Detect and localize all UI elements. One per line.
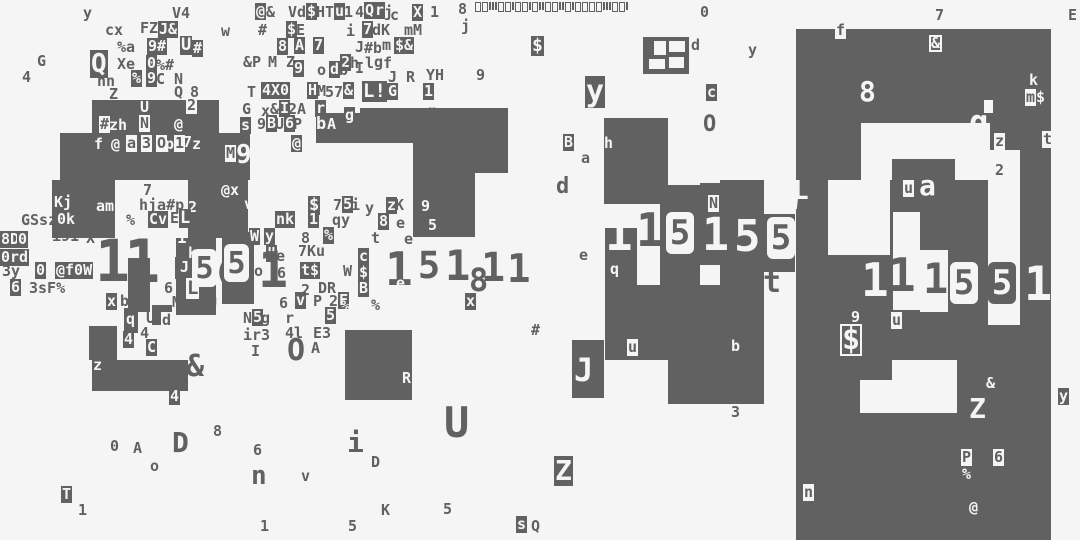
glyph: 0 bbox=[110, 439, 119, 454]
glyph: i bbox=[351, 198, 360, 213]
glyph: y bbox=[365, 201, 374, 216]
glyph: e bbox=[404, 232, 413, 247]
glyph: 6 bbox=[253, 443, 262, 458]
glyph: J bbox=[180, 260, 189, 275]
glyph: n bbox=[803, 484, 814, 501]
glyph: b bbox=[316, 116, 326, 133]
glyph: e bbox=[579, 248, 588, 263]
big-digit: 1 bbox=[702, 212, 729, 257]
glyph: A bbox=[133, 441, 142, 456]
big-digit: 1 bbox=[923, 258, 948, 300]
big-digit: 5 bbox=[224, 244, 249, 282]
glyph: P bbox=[313, 294, 322, 309]
glyph: u bbox=[98, 327, 107, 342]
glyph: e bbox=[253, 147, 265, 167]
glyph: u bbox=[891, 312, 902, 329]
glyph: & bbox=[343, 82, 354, 99]
glyph: % bbox=[126, 213, 135, 228]
barcode-box bbox=[596, 2, 602, 12]
glyph: B bbox=[909, 216, 918, 231]
glyph: 9 bbox=[257, 117, 266, 132]
barcode-box bbox=[575, 2, 581, 12]
window-pane bbox=[649, 59, 665, 69]
glyph: 9# bbox=[147, 38, 167, 55]
barcode-box bbox=[532, 2, 538, 12]
glyph: 5 bbox=[428, 218, 437, 233]
hole bbox=[860, 380, 957, 413]
glyph: a bbox=[126, 135, 137, 152]
glyph: 0 bbox=[700, 5, 709, 20]
glyph: Y bbox=[71, 196, 80, 211]
barcode-box bbox=[552, 2, 558, 12]
glyph: 1 bbox=[423, 83, 434, 100]
big-digit: 5 bbox=[734, 215, 761, 259]
glyph: E bbox=[1068, 8, 1077, 23]
glyph: s bbox=[516, 516, 527, 533]
glyph: 8 bbox=[378, 213, 389, 230]
glyph: GSsz bbox=[21, 213, 57, 228]
glyph: J& bbox=[158, 21, 178, 38]
big-digit: 1 bbox=[605, 211, 633, 257]
glyph: d bbox=[556, 176, 569, 198]
glyph: # bbox=[192, 40, 203, 57]
glyph: 0k bbox=[56, 211, 76, 228]
barcode-bar bbox=[539, 2, 541, 10]
glyph: y bbox=[83, 6, 92, 21]
glyph: f bbox=[94, 137, 103, 152]
barcode-bar bbox=[489, 2, 491, 10]
glyph: g bbox=[261, 311, 270, 326]
glyph: qy bbox=[332, 213, 350, 228]
glyph: Z bbox=[969, 395, 986, 423]
big-digit: 1 bbox=[1024, 261, 1052, 308]
glyph: % bbox=[131, 70, 142, 87]
barcode-box bbox=[482, 2, 488, 12]
barcode-box bbox=[545, 2, 551, 12]
big-digit: 5 bbox=[414, 242, 444, 288]
glyph: J bbox=[574, 354, 593, 386]
glyph: P bbox=[293, 117, 302, 132]
glyph: Z bbox=[554, 456, 573, 486]
glyph: # bbox=[531, 323, 540, 338]
glyph: r bbox=[427, 104, 436, 119]
glyph: %a bbox=[117, 40, 135, 55]
barcode-bar bbox=[559, 2, 561, 10]
glyph: g bbox=[344, 107, 355, 124]
glyph: 6 bbox=[10, 279, 21, 296]
glyph: u bbox=[903, 180, 914, 197]
glyph: i91 bbox=[52, 229, 79, 244]
glyph: k bbox=[188, 246, 197, 261]
glyph: 57 bbox=[325, 85, 343, 100]
glyph: @ bbox=[174, 117, 183, 132]
glyph: W bbox=[343, 264, 352, 279]
glyph: & bbox=[186, 352, 204, 382]
glyph: Cv bbox=[148, 211, 168, 228]
glyph: z bbox=[93, 358, 102, 373]
glyph: G bbox=[387, 83, 398, 100]
glyph: vQ bbox=[244, 197, 262, 212]
glitch-canvas: 115(51151811115155111551yV4@&Vd$HTu14Qrj… bbox=[0, 0, 1080, 540]
glyph: 0 bbox=[17, 231, 28, 248]
glyph: 1 bbox=[78, 503, 87, 518]
glyph: L bbox=[179, 209, 191, 228]
glyph: b bbox=[731, 339, 740, 354]
glyph: % bbox=[962, 467, 971, 482]
glyph: 4 bbox=[169, 388, 180, 405]
glyph: 4X0 bbox=[261, 82, 290, 99]
barcode-bar bbox=[626, 2, 628, 10]
glyph: t bbox=[1042, 131, 1053, 148]
glyph: 7 bbox=[183, 135, 192, 150]
glyph: 5 bbox=[443, 502, 452, 517]
glyph: e bbox=[396, 276, 405, 291]
glyph: 1 bbox=[260, 519, 269, 534]
hole bbox=[828, 180, 890, 255]
glyph: y bbox=[264, 228, 275, 245]
barcode-bar bbox=[492, 2, 494, 10]
barcode-bar bbox=[562, 2, 564, 10]
glyph: B bbox=[358, 280, 369, 297]
glyph: 1 bbox=[177, 230, 187, 246]
glyph: B bbox=[563, 134, 574, 151]
glyph: o bbox=[150, 459, 159, 474]
block bbox=[413, 143, 508, 173]
glyph: K bbox=[395, 198, 404, 213]
glyph: k bbox=[1029, 73, 1038, 88]
glyph: u bbox=[627, 339, 638, 356]
window-pane bbox=[654, 41, 666, 55]
glyph: h bbox=[604, 136, 613, 151]
glyph: U bbox=[444, 402, 469, 444]
glyph: e bbox=[276, 249, 285, 264]
big-digit: 1 bbox=[124, 232, 160, 292]
glyph: 9 bbox=[293, 60, 304, 77]
big-digit: 1 bbox=[445, 245, 470, 287]
glyph: 0 bbox=[35, 262, 46, 279]
glyph: 8 bbox=[458, 2, 467, 17]
glyph: b bbox=[120, 294, 129, 309]
glyph: 2 bbox=[186, 97, 197, 114]
barcode-bar bbox=[542, 2, 544, 10]
barcode-box bbox=[505, 2, 511, 12]
glyph: V4 bbox=[172, 6, 190, 21]
glyph: m bbox=[381, 37, 392, 54]
glyph: Z bbox=[109, 87, 118, 102]
glyph: t$ bbox=[300, 262, 320, 279]
glyph: A bbox=[310, 340, 321, 357]
glyph: Vd bbox=[288, 5, 306, 20]
barcode-box bbox=[498, 2, 504, 12]
glyph: N bbox=[139, 115, 150, 132]
glyph: M bbox=[268, 55, 277, 70]
glyph: O bbox=[287, 336, 305, 366]
glyph: U bbox=[208, 296, 217, 311]
glyph: $& bbox=[394, 37, 414, 54]
big-digit: 5 bbox=[767, 217, 795, 259]
barcode-box bbox=[582, 2, 588, 12]
window-pane bbox=[669, 41, 685, 52]
glyph: % bbox=[341, 299, 350, 314]
glyph: n bbox=[251, 463, 267, 489]
glyph: Q bbox=[174, 85, 183, 100]
glyph: d bbox=[691, 38, 700, 53]
glyph: 4 bbox=[355, 5, 364, 20]
glyph: & bbox=[986, 376, 995, 391]
glyph: t bbox=[371, 231, 380, 246]
glyph: P bbox=[961, 449, 972, 466]
glyph: $ bbox=[1036, 90, 1045, 105]
glyph: % bbox=[371, 298, 380, 313]
glyph: 4 bbox=[22, 70, 31, 85]
glyph: nk bbox=[275, 211, 295, 228]
big-digit: 1 bbox=[481, 248, 505, 288]
glyph: N bbox=[708, 195, 719, 212]
glyph: 3 bbox=[731, 405, 740, 420]
glyph: N bbox=[243, 311, 252, 326]
glyph: w bbox=[221, 24, 230, 39]
barcode-box bbox=[565, 2, 571, 12]
glyph: j bbox=[461, 19, 470, 34]
big-digit: 1 bbox=[636, 207, 664, 253]
glyph: T bbox=[61, 486, 72, 503]
barcode-box bbox=[619, 2, 625, 12]
glyph: 9 bbox=[236, 142, 252, 168]
glyph: D bbox=[371, 455, 380, 470]
glyph: y bbox=[585, 76, 605, 108]
glyph: @f0W bbox=[55, 262, 93, 279]
glyph: W bbox=[249, 228, 260, 245]
glyph: v bbox=[295, 292, 306, 309]
glyph: c bbox=[706, 84, 717, 101]
barcode-box bbox=[475, 2, 481, 12]
glyph: m bbox=[1025, 89, 1036, 106]
barcode-box bbox=[589, 2, 595, 12]
glyph: e bbox=[396, 216, 405, 231]
window-panes-icon bbox=[643, 37, 689, 74]
glyph: s bbox=[240, 117, 251, 134]
glyph: z bbox=[192, 137, 201, 152]
glyph: p bbox=[165, 137, 174, 152]
barcode-bar bbox=[603, 2, 605, 10]
hole bbox=[892, 360, 957, 382]
big-digit: 5 bbox=[988, 262, 1016, 304]
big-digit: 5 bbox=[950, 262, 978, 304]
barcode-bar bbox=[529, 2, 531, 10]
glyph: M bbox=[225, 145, 236, 162]
glyph: v bbox=[301, 469, 310, 484]
glyph: L! bbox=[362, 81, 387, 102]
glyph: # bbox=[258, 23, 267, 38]
glyph: 1 bbox=[308, 211, 319, 228]
glyph: U bbox=[140, 100, 149, 115]
glyph: 8 bbox=[859, 78, 876, 106]
glyph: 4 bbox=[123, 331, 134, 348]
glyph: D bbox=[172, 429, 189, 457]
glyph: L bbox=[186, 278, 199, 299]
glyph: 8 bbox=[213, 424, 222, 439]
glyph: @ bbox=[969, 500, 978, 515]
glyph: Q bbox=[531, 519, 540, 534]
glyph: o bbox=[317, 63, 326, 78]
glyph: 7 bbox=[313, 37, 324, 54]
glyph: g bbox=[969, 106, 988, 138]
big-digit: 5 bbox=[666, 212, 694, 254]
glyph: q bbox=[126, 312, 135, 327]
glyph: O bbox=[703, 114, 716, 136]
glyph: b bbox=[339, 63, 348, 78]
glyph: x bbox=[465, 293, 476, 310]
glyph: I bbox=[251, 344, 260, 359]
glyph: X bbox=[412, 4, 423, 21]
glyph: cx bbox=[105, 23, 123, 38]
big-digit: 1 bbox=[861, 257, 889, 303]
glyph: 2 bbox=[995, 163, 1004, 178]
barcode-strip bbox=[475, 2, 629, 12]
glyph: X bbox=[86, 231, 95, 246]
big-digit: 1 bbox=[888, 252, 916, 298]
glyph: C bbox=[156, 72, 165, 87]
glyph: f bbox=[835, 22, 846, 39]
block bbox=[668, 360, 720, 404]
glyph: 1 bbox=[344, 5, 353, 20]
glyph: G bbox=[37, 54, 46, 69]
barcode-box bbox=[522, 2, 528, 12]
glyph: 7 bbox=[935, 8, 944, 23]
glyph: 9 bbox=[476, 68, 485, 83]
glyph: 3sF% bbox=[29, 281, 65, 296]
barcode-bar bbox=[609, 2, 611, 10]
glyph: ir3 bbox=[243, 328, 270, 343]
glyph: YH bbox=[426, 68, 444, 83]
glyph: y bbox=[748, 43, 757, 58]
glyph: a bbox=[919, 172, 936, 200]
barcode-bar bbox=[606, 2, 608, 10]
glyph: W bbox=[789, 197, 798, 212]
glyph: 5 bbox=[348, 519, 357, 534]
glyph: y bbox=[1058, 388, 1069, 405]
glyph: $ bbox=[840, 324, 862, 356]
glyph: J bbox=[355, 40, 364, 55]
barcode-bar bbox=[572, 2, 574, 10]
glyph: 1 bbox=[430, 5, 439, 20]
glyph: 6 bbox=[277, 266, 286, 281]
glyph: s bbox=[941, 26, 950, 41]
glyph: HT bbox=[316, 5, 334, 20]
glyph: 7Ku bbox=[298, 244, 325, 259]
glyph: &P bbox=[243, 55, 261, 70]
glyph: z bbox=[994, 133, 1005, 150]
glyph: x bbox=[106, 293, 117, 310]
glyph: t bbox=[763, 268, 781, 298]
barcode-bar bbox=[512, 2, 514, 10]
block bbox=[604, 118, 668, 204]
glyph: A bbox=[294, 37, 305, 54]
glyph: 6 bbox=[993, 449, 1004, 466]
glyph: T bbox=[247, 85, 256, 100]
glyph: zh bbox=[109, 118, 127, 133]
glyph: U bbox=[180, 36, 192, 55]
glyph: q bbox=[610, 262, 619, 277]
glyph: 9 bbox=[421, 199, 430, 214]
glyph: $ bbox=[531, 36, 544, 56]
glyph: c bbox=[390, 8, 399, 23]
glyph: @ bbox=[255, 3, 266, 20]
window-pane bbox=[669, 57, 684, 68]
glyph: @x bbox=[220, 182, 240, 199]
glyph: R bbox=[402, 371, 411, 386]
glyph: %T bbox=[94, 213, 112, 228]
glyph: i bbox=[347, 429, 364, 457]
glyph: G bbox=[242, 102, 251, 117]
glyph: K bbox=[381, 503, 390, 518]
glyph: d bbox=[161, 312, 172, 329]
barcode-bar bbox=[495, 2, 497, 10]
barcode-box bbox=[612, 2, 618, 12]
glyph: 3y bbox=[2, 264, 20, 279]
glyph: o bbox=[254, 264, 263, 279]
glyph: 3 bbox=[141, 135, 152, 152]
glyph: @ bbox=[111, 137, 120, 152]
glyph: R bbox=[406, 70, 415, 85]
block bbox=[60, 133, 250, 180]
glyph: a bbox=[581, 151, 590, 166]
barcode-box bbox=[515, 2, 521, 12]
glyph: A bbox=[327, 117, 336, 132]
glyph: FZ bbox=[140, 21, 158, 36]
glyph: U bbox=[275, 117, 284, 132]
glyph: E bbox=[170, 211, 179, 226]
glyph: 5 bbox=[325, 307, 336, 324]
glyph: @ bbox=[291, 135, 302, 152]
big-digit: 1 bbox=[507, 250, 530, 289]
glyph: I bbox=[355, 61, 364, 76]
glyph: i bbox=[346, 24, 355, 39]
glyph: C bbox=[146, 339, 157, 356]
glyph: M bbox=[172, 295, 181, 310]
glyph: & bbox=[266, 5, 275, 20]
glyph: & bbox=[929, 35, 942, 52]
